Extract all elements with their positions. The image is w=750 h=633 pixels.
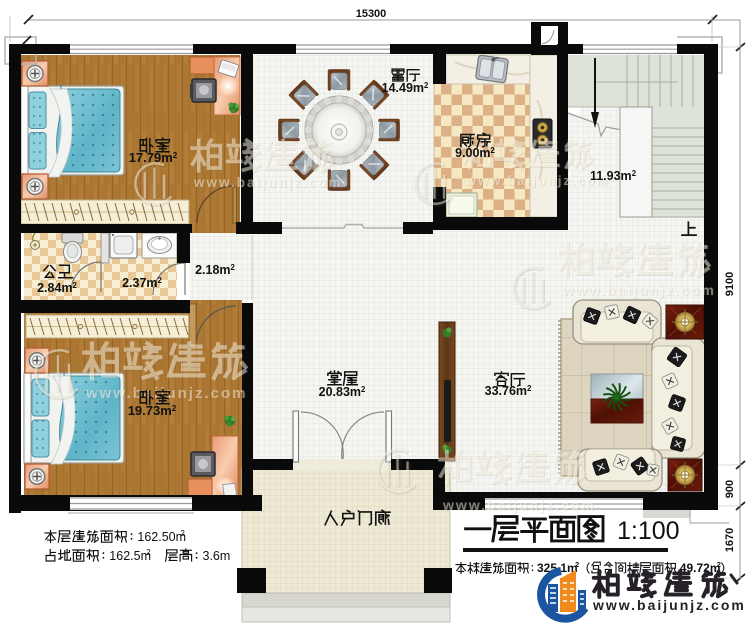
svg-text:19.73m2: 19.73m2	[128, 403, 177, 418]
svg-text:20.83m2: 20.83m2	[319, 385, 366, 399]
svg-text:17.79m2: 17.79m2	[129, 150, 178, 165]
svg-text:162.50m: 162.50m	[137, 530, 186, 544]
svg-text:2: 2	[180, 529, 185, 538]
svg-text:2.37m2: 2.37m2	[122, 276, 162, 290]
svg-text:www.baijunjz.com: www.baijunjz.com	[562, 282, 716, 298]
svg-text:900: 900	[724, 480, 736, 498]
svg-text:2.18m2: 2.18m2	[195, 263, 235, 277]
svg-text:www.baijunjz.com: www.baijunjz.com	[592, 597, 746, 613]
svg-text:www.baijunjz.com: www.baijunjz.com	[85, 385, 247, 402]
svg-text:9100: 9100	[724, 272, 736, 296]
svg-text:www.baijunjz.com: www.baijunjz.com	[442, 497, 596, 513]
svg-text:1:100: 1:100	[617, 517, 680, 545]
svg-text:2: 2	[575, 560, 579, 569]
svg-text:2.84m2: 2.84m2	[37, 281, 77, 295]
svg-text:162.5m: 162.5m	[109, 549, 151, 563]
svg-text:33.76m2: 33.76m2	[485, 384, 532, 398]
svg-text:9.00m2: 9.00m2	[455, 146, 495, 160]
svg-text:14.49m2: 14.49m2	[382, 81, 429, 95]
svg-text:2: 2	[717, 560, 721, 569]
svg-text:2: 2	[146, 548, 151, 557]
svg-text:www.baijunjz.com: www.baijunjz.com	[193, 175, 343, 190]
svg-text:3.6m: 3.6m	[203, 549, 231, 563]
svg-text:1670: 1670	[724, 528, 736, 552]
svg-text:11.93m2: 11.93m2	[590, 169, 637, 183]
svg-text:15300: 15300	[356, 8, 387, 20]
svg-text:www.baijunjz.com: www.baijunjz.com	[465, 173, 610, 188]
